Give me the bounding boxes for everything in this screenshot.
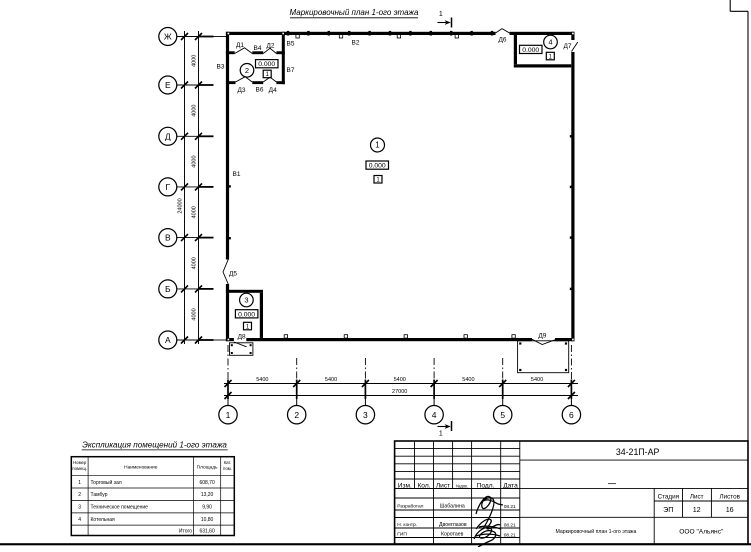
svg-text:5400: 5400 [531, 377, 543, 383]
svg-text:4000: 4000 [191, 105, 197, 117]
svg-text:Е: Е [165, 80, 171, 90]
svg-text:Кол.: Кол. [417, 482, 430, 489]
svg-text:Д7: Д7 [563, 43, 571, 50]
svg-text:Д5: Д5 [229, 270, 237, 277]
svg-text:Котельная: Котельная [91, 517, 115, 523]
svg-text:Стадия: Стадия [658, 494, 679, 501]
svg-text:Лист: Лист [436, 482, 450, 489]
svg-text:ООО "Альянс": ООО "Альянс" [679, 528, 724, 535]
svg-text:Ж: Ж [164, 32, 172, 42]
svg-text:3: 3 [244, 296, 248, 305]
svg-text:10,80: 10,80 [201, 517, 214, 523]
svg-text:6: 6 [569, 410, 574, 420]
svg-text:Экспликация помещений 1-ого эт: Экспликация помещений 1-ого этажа [82, 440, 227, 449]
svg-text:В6: В6 [256, 86, 264, 93]
svg-text:4000: 4000 [191, 155, 197, 167]
svg-text:В1: В1 [233, 171, 241, 178]
svg-text:Разработал: Разработал [397, 503, 423, 509]
svg-text:0.000: 0.000 [238, 311, 255, 318]
svg-text:4: 4 [548, 38, 552, 47]
svg-text:№док.: №док. [456, 484, 468, 489]
svg-text:5: 5 [500, 410, 505, 420]
svg-text:помещ.: помещ. [72, 466, 87, 471]
svg-text:В7: В7 [287, 67, 295, 74]
svg-text:Лист: Лист [690, 494, 704, 501]
svg-text:Площадь: Площадь [197, 465, 218, 471]
svg-text:16: 16 [726, 505, 734, 514]
svg-text:0.000: 0.000 [369, 163, 386, 170]
svg-text:1: 1 [78, 480, 81, 486]
svg-text:13,20: 13,20 [201, 492, 214, 498]
svg-text:4000: 4000 [191, 55, 197, 67]
svg-text:В: В [165, 233, 171, 243]
svg-text:9,90: 9,90 [202, 505, 212, 511]
svg-text:Маркировочный план 1-ого этажа: Маркировочный план 1-ого этажа [290, 8, 420, 17]
svg-text:5400: 5400 [462, 377, 474, 383]
svg-text:5400: 5400 [256, 377, 268, 383]
svg-text:4000: 4000 [191, 206, 197, 218]
svg-text:0.000: 0.000 [522, 47, 539, 54]
svg-text:4: 4 [78, 517, 81, 523]
svg-text:Техническое помещение: Техническое помещение [91, 505, 149, 511]
svg-text:Двоеглазов: Двоеглазов [439, 522, 467, 528]
svg-text:2: 2 [245, 66, 249, 75]
svg-text:1: 1 [439, 11, 443, 18]
svg-text:Д9: Д9 [538, 333, 546, 340]
svg-text:3: 3 [78, 505, 81, 511]
svg-text:Д4: Д4 [269, 87, 277, 94]
svg-text:34-21П-АР: 34-21П-АР [616, 447, 660, 457]
svg-text:08.21: 08.21 [504, 532, 516, 538]
svg-text:Номер: Номер [73, 460, 87, 465]
svg-text:1: 1 [226, 410, 231, 420]
svg-text:Кат.: Кат. [224, 460, 231, 465]
svg-text:1: 1 [375, 141, 380, 150]
svg-text:ГИП: ГИП [397, 531, 407, 537]
svg-text:24000: 24000 [177, 198, 183, 213]
svg-text:Торговый зал: Торговый зал [91, 479, 122, 486]
svg-text:2: 2 [78, 492, 81, 498]
svg-text:Наименование: Наименование [124, 465, 158, 471]
svg-text:5400: 5400 [325, 377, 337, 383]
svg-text:0.000: 0.000 [258, 61, 275, 68]
svg-text:608,70: 608,70 [199, 480, 215, 486]
svg-text:27000: 27000 [392, 389, 407, 395]
svg-text:В4: В4 [254, 45, 262, 52]
svg-text:Тамбур: Тамбур [91, 492, 108, 498]
svg-text:12: 12 [693, 505, 701, 514]
svg-text:Листов: Листов [719, 494, 740, 501]
svg-text:08.21: 08.21 [504, 523, 516, 529]
svg-text:5400: 5400 [394, 377, 406, 383]
svg-text:Б: Б [165, 284, 171, 294]
svg-text:08.21: 08.21 [504, 504, 516, 510]
svg-text:А: А [165, 335, 171, 345]
svg-text:Дата: Дата [503, 482, 518, 489]
svg-text:3: 3 [363, 410, 368, 420]
svg-text:Шабалина: Шабалина [440, 503, 465, 509]
svg-text:Изм.: Изм. [398, 482, 412, 489]
svg-text:Д2: Д2 [266, 43, 274, 50]
svg-text:Подл.: Подл. [477, 482, 495, 489]
svg-text:Д8: Д8 [238, 333, 246, 340]
svg-text:1: 1 [439, 431, 443, 438]
svg-text:Д: Д [165, 131, 171, 141]
svg-text:4000: 4000 [191, 257, 197, 269]
svg-text:В3: В3 [217, 64, 225, 71]
svg-text:Н. контр.: Н. контр. [397, 522, 417, 528]
svg-text:631,60: 631,60 [199, 528, 215, 534]
svg-text:Д6: Д6 [498, 37, 506, 44]
svg-text:ЭП: ЭП [663, 505, 673, 514]
svg-text:Д3: Д3 [237, 87, 245, 94]
svg-text:Д1: Д1 [236, 42, 244, 49]
svg-text:В2: В2 [352, 39, 360, 46]
svg-text:Итого: Итого [179, 528, 192, 534]
svg-text:пом.: пом. [223, 466, 232, 471]
svg-text:4000: 4000 [191, 308, 197, 320]
svg-text:Г: Г [165, 182, 170, 192]
svg-text:В5: В5 [287, 40, 295, 47]
svg-text:4: 4 [432, 410, 437, 420]
svg-text:Маркировочный план 1-ого этажа: Маркировочный план 1-ого этажа [555, 528, 636, 535]
svg-text:2: 2 [294, 410, 299, 420]
svg-text:Коротаев: Коротаев [441, 531, 464, 537]
